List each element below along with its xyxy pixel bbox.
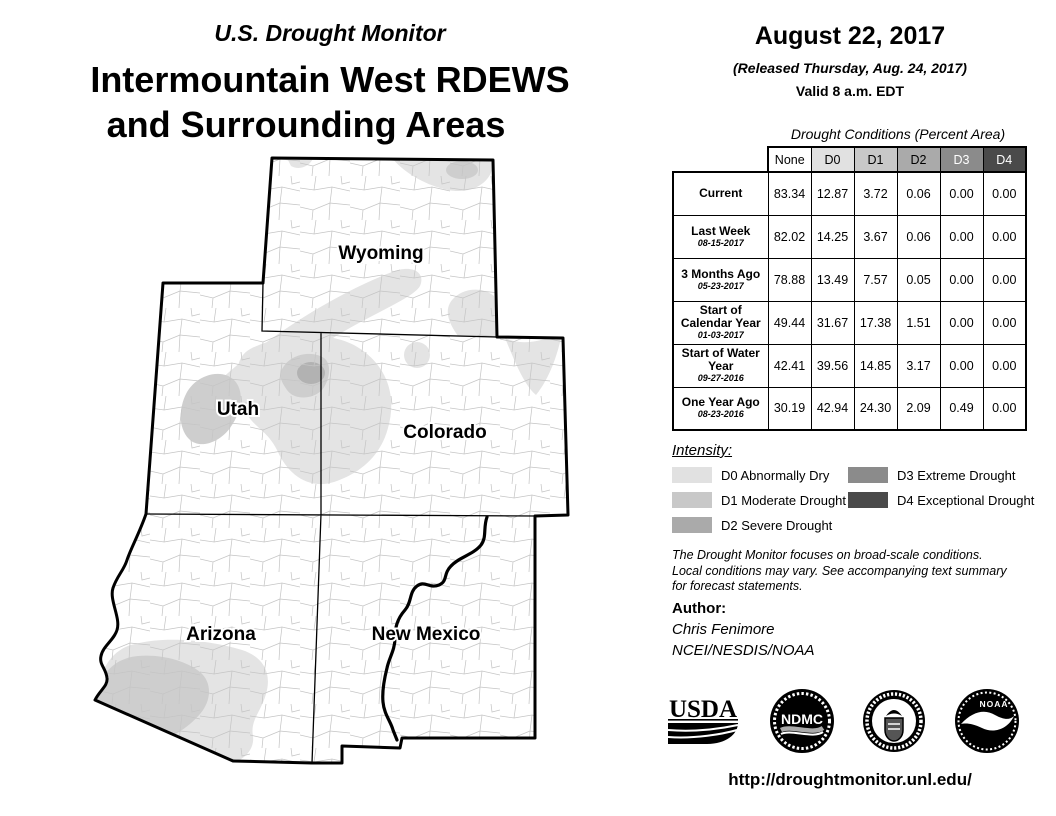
row-date: 09-27-2016: [675, 373, 767, 384]
cell-value: 0.00: [983, 301, 1026, 344]
cell-value: 0.06: [897, 215, 940, 258]
cell-value: 14.85: [854, 344, 897, 387]
page-title-line1: Intermountain West RDEWS: [10, 57, 650, 102]
state-label-new-mexico: New Mexico: [372, 624, 481, 645]
cell-value: 17.38: [854, 301, 897, 344]
note-line: Local conditions may vary. See accompany…: [672, 564, 1007, 580]
cell-value: 0.00: [983, 344, 1026, 387]
col-header-none: None: [768, 147, 811, 172]
d3-swatch: [848, 467, 888, 483]
d4-swatch: [848, 492, 888, 508]
cell-value: 7.57: [854, 258, 897, 301]
cell-value: 1.51: [897, 301, 940, 344]
state-label-arizona: Arizona: [186, 624, 256, 645]
cell-value: 78.88: [768, 258, 811, 301]
author-name: Chris Fenimore: [672, 621, 775, 638]
ndmc-logo: NDMC: [769, 688, 835, 754]
d2-swatch: [672, 517, 712, 533]
legend-label: D3 Extreme Drought: [897, 468, 1016, 483]
cell-value: 0.00: [983, 258, 1026, 301]
state-label-utah: Utah: [217, 399, 259, 420]
author-heading: Author:: [672, 600, 726, 617]
cell-value: 24.30: [854, 387, 897, 430]
released-date: (Released Thursday, Aug. 24, 2017): [660, 60, 1040, 76]
cell-value: 0.00: [940, 258, 983, 301]
table-caption: Drought Conditions (Percent Area): [768, 126, 1028, 142]
page-title-line2: and Surrounding Areas: [10, 102, 650, 147]
table-corner-cell: [673, 147, 768, 172]
usda-logo: USDA: [665, 695, 741, 747]
cell-value: 14.25: [811, 215, 854, 258]
drought-monitor-url: http://droughtmonitor.unl.edu/: [660, 770, 1040, 790]
row-label: Current: [675, 187, 767, 200]
table-header-row: None D0 D1 D2 D3 D4: [673, 147, 1026, 172]
row-label: Start of Calendar Year: [675, 304, 767, 330]
noaa-logo: NOAA: [954, 688, 1020, 754]
note-line: The Drought Monitor focuses on broad-sca…: [672, 548, 1007, 564]
table-row-start-water-year: Start of Water Year09-27-2016 42.41 39.5…: [673, 344, 1026, 387]
legend-label: D1 Moderate Drought: [721, 493, 846, 508]
state-label-wyoming: Wyoming: [338, 243, 423, 264]
county-lines: [95, 158, 568, 763]
table-row-3-months-ago: 3 Months Ago05-23-2017 78.88 13.49 7.57 …: [673, 258, 1026, 301]
commerce-seal-logo: [862, 689, 926, 753]
row-date: 01-03-2017: [675, 330, 767, 341]
cell-value: 0.00: [983, 387, 1026, 430]
row-date: 08-23-2016: [675, 409, 767, 420]
col-header-d4: D4: [983, 147, 1026, 172]
cell-value: 0.00: [940, 215, 983, 258]
table-row-one-year-ago: One Year Ago08-23-2016 30.19 42.94 24.30…: [673, 387, 1026, 430]
title-block: U.S. Drought Monitor Intermountain West …: [10, 20, 650, 147]
report-date: August 22, 2017: [660, 22, 1040, 51]
info-panel: August 22, 2017 (Released Thursday, Aug.…: [660, 0, 1056, 816]
d0-swatch: [672, 467, 712, 483]
supertitle: U.S. Drought Monitor: [10, 20, 650, 47]
cell-value: 0.00: [983, 172, 1026, 215]
svg-text:NOAA: NOAA: [979, 699, 1008, 709]
row-label: One Year Ago: [675, 396, 767, 409]
legend-label: D4 Exceptional Drought: [897, 493, 1034, 508]
state-label-colorado: Colorado: [403, 422, 486, 443]
cell-value: 3.72: [854, 172, 897, 215]
drought-conditions-table: None D0 D1 D2 D3 D4 Current 83.34 12.87 …: [672, 146, 1027, 431]
table-row-start-calendar-year: Start of Calendar Year01-03-2017 49.44 3…: [673, 301, 1026, 344]
col-header-d2: D2: [897, 147, 940, 172]
legend-label: D2 Severe Drought: [721, 518, 832, 533]
cell-value: 31.67: [811, 301, 854, 344]
row-date: 05-23-2017: [675, 281, 767, 292]
cell-value: 0.00: [983, 215, 1026, 258]
svg-text:NDMC: NDMC: [781, 711, 823, 727]
d1-swatch: [672, 492, 712, 508]
col-header-d1: D1: [854, 147, 897, 172]
cell-value: 3.17: [897, 344, 940, 387]
note-line: for forecast statements.: [672, 579, 1007, 595]
intensity-heading: Intensity:: [672, 442, 732, 459]
valid-time: Valid 8 a.m. EDT: [660, 83, 1040, 99]
row-label: 3 Months Ago: [675, 268, 767, 281]
cell-value: 42.41: [768, 344, 811, 387]
cell-value: 13.49: [811, 258, 854, 301]
col-header-d3: D3: [940, 147, 983, 172]
cell-value: 0.05: [897, 258, 940, 301]
cell-value: 39.56: [811, 344, 854, 387]
legend-label: D0 Abnormally Dry: [721, 468, 829, 483]
cell-value: 0.00: [940, 344, 983, 387]
drought-table-wrap: None D0 D1 D2 D3 D4 Current 83.34 12.87 …: [672, 146, 1027, 431]
cell-value: 49.44: [768, 301, 811, 344]
col-header-d0: D0: [811, 147, 854, 172]
table-row-current: Current 83.34 12.87 3.72 0.06 0.00 0.00: [673, 172, 1026, 215]
author-org: NCEI/NESDIS/NOAA: [672, 642, 815, 659]
cell-value: 82.02: [768, 215, 811, 258]
cell-value: 0.06: [897, 172, 940, 215]
cell-value: 30.19: [768, 387, 811, 430]
cell-value: 12.87: [811, 172, 854, 215]
cell-value: 83.34: [768, 172, 811, 215]
cell-value: 2.09: [897, 387, 940, 430]
agency-logos: USDA NDMC NOAA: [665, 688, 1020, 754]
row-label: Start of Water Year: [675, 347, 767, 373]
cell-value: 42.94: [811, 387, 854, 430]
cell-value: 0.00: [940, 301, 983, 344]
table-row-last-week: Last Week08-15-2017 82.02 14.25 3.67 0.0…: [673, 215, 1026, 258]
row-label: Last Week: [675, 225, 767, 238]
cell-value: 0.49: [940, 387, 983, 430]
cell-value: 3.67: [854, 215, 897, 258]
row-date: 08-15-2017: [675, 238, 767, 249]
svg-text:USDA: USDA: [669, 696, 737, 723]
disclaimer-note: The Drought Monitor focuses on broad-sca…: [672, 548, 1007, 595]
cell-value: 0.00: [940, 172, 983, 215]
